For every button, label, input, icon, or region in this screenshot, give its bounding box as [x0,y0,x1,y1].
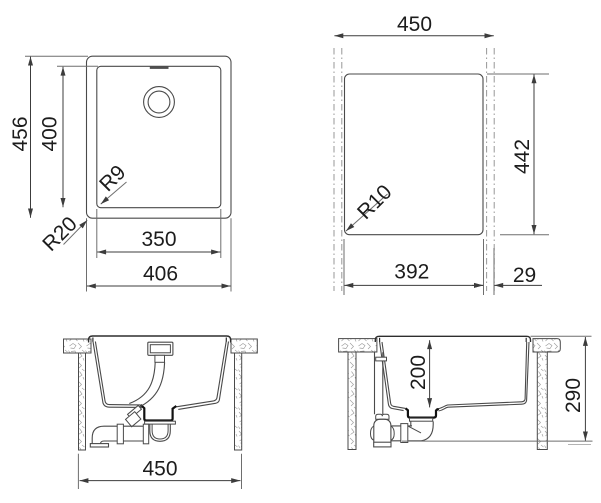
svg-text:450: 450 [397,13,432,36]
svg-text:442: 442 [511,139,534,174]
svg-text:406: 406 [143,263,178,286]
svg-text:450: 450 [142,457,177,480]
svg-text:290: 290 [562,378,585,413]
svg-text:456: 456 [9,116,32,151]
svg-text:200: 200 [407,355,430,390]
svg-text:392: 392 [394,260,429,283]
svg-text:400: 400 [39,116,62,151]
svg-text:29: 29 [513,264,536,287]
svg-text:350: 350 [141,228,176,251]
